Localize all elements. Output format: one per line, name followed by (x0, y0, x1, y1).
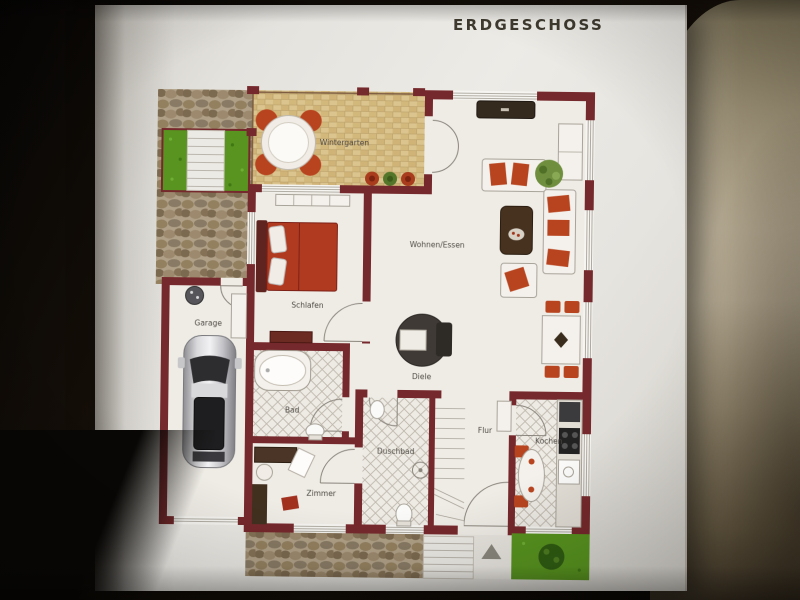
front-lawn-and-steps (162, 129, 250, 192)
room-label-bad: Bad (285, 406, 300, 415)
book-shadow (0, 430, 215, 600)
armchair (501, 263, 537, 297)
potted-plants (365, 171, 415, 186)
coffee-table (500, 206, 533, 254)
bath-sink (306, 424, 324, 440)
bed (256, 220, 338, 293)
kitchen-counter (556, 400, 583, 527)
floor-plan: Wintergarten Wohnen/Essen Schlafen Garag… (145, 79, 621, 585)
room-label-diele: Diele (412, 372, 432, 381)
room-label-flur: Flur (478, 426, 493, 435)
room-label-wintergarten: Wintergarten (320, 138, 370, 148)
room-label-wohnen-essen: Wohnen/Essen (410, 240, 465, 250)
room-label-duschbad: Duschbad (377, 447, 415, 456)
room-label-zimmer: Zimmer (306, 489, 337, 498)
wintergarten-area (246, 86, 425, 188)
room-label-schlafen: Schlafen (291, 301, 324, 310)
staircase-interior (434, 398, 466, 525)
hall-closet (497, 401, 511, 431)
page-title: ERDGESCHOSS (453, 16, 604, 34)
backyard-lawn (511, 533, 590, 580)
sideboard (477, 101, 535, 119)
bathtub (254, 350, 310, 391)
entrance-steps (423, 534, 512, 579)
room-label-kochen: Kochen (535, 437, 563, 446)
wintergarten-table (255, 109, 322, 176)
room-label-garage: Garage (194, 318, 222, 327)
